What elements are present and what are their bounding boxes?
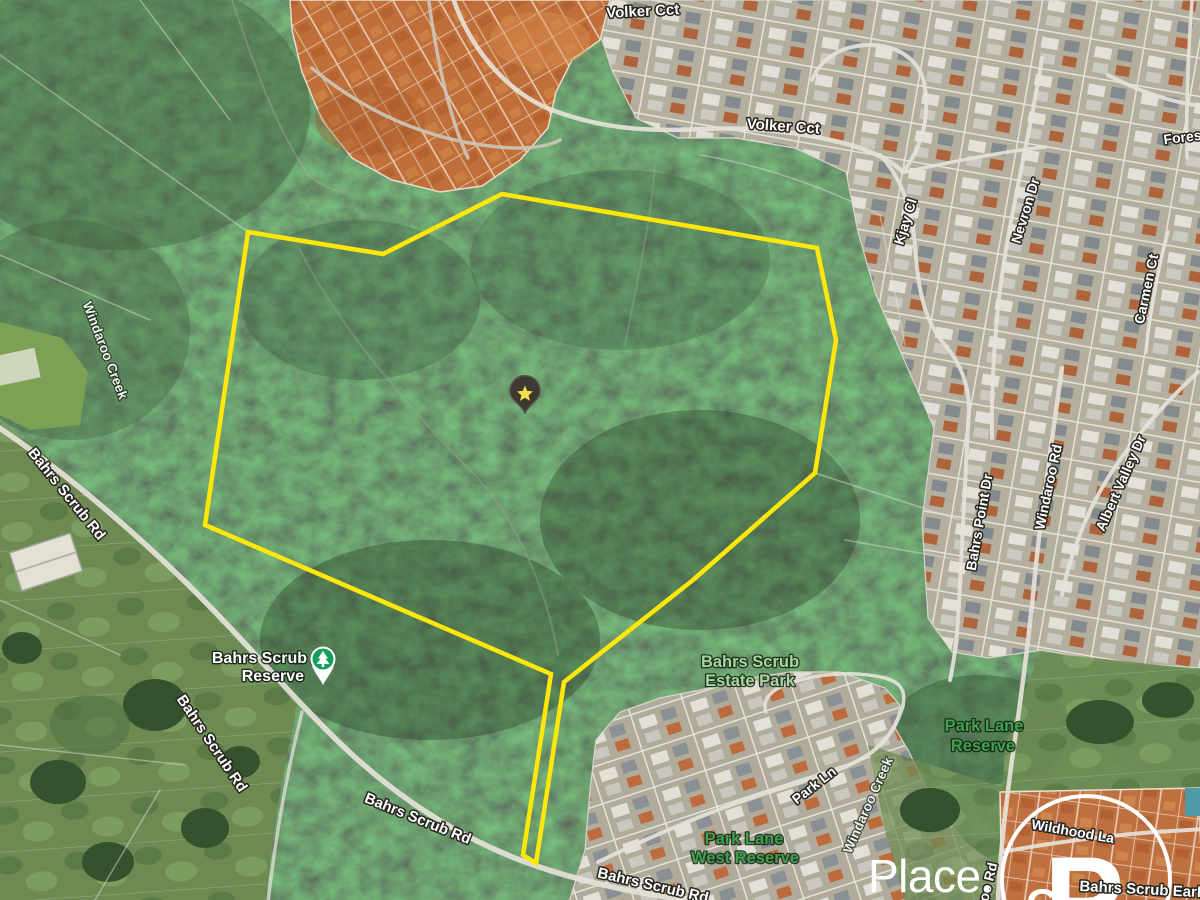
poi-bahrs-scrub-reserve-line2[interactable]: Reserve	[242, 668, 304, 685]
google-logo-fragment: G	[1026, 880, 1059, 900]
satellite-map-viewport[interactable]: P G Volker Cct Volker Cct Kjay Cl Nevron…	[0, 0, 1200, 900]
poi-park-lane-west-line2[interactable]: West Reserve	[691, 849, 799, 867]
satellite-map[interactable]: P G Volker Cct Volker Cct Kjay Cl Nevron…	[0, 0, 1200, 900]
place-watermark: Place.	[868, 850, 993, 900]
poi-estate-park[interactable]: Bahrs Scrub Estate Park	[701, 653, 799, 690]
poi-bahrs-scrub-reserve-line1[interactable]: Bahrs Scrub	[212, 650, 307, 667]
poi-park-lane-west-line1[interactable]: Park Lane	[705, 830, 784, 848]
poi-estate-park-line2[interactable]: Estate Park	[705, 672, 796, 690]
pool-patch	[1185, 788, 1200, 816]
poi-park-lane-west-reserve[interactable]: Park Lane West Reserve	[691, 830, 799, 867]
poi-park-lane-reserve-line1[interactable]: Park Lane	[945, 717, 1024, 735]
poi-estate-park-line1[interactable]: Bahrs Scrub	[701, 653, 799, 671]
poi-park-lane-reserve-line2[interactable]: Reserve	[951, 737, 1015, 755]
